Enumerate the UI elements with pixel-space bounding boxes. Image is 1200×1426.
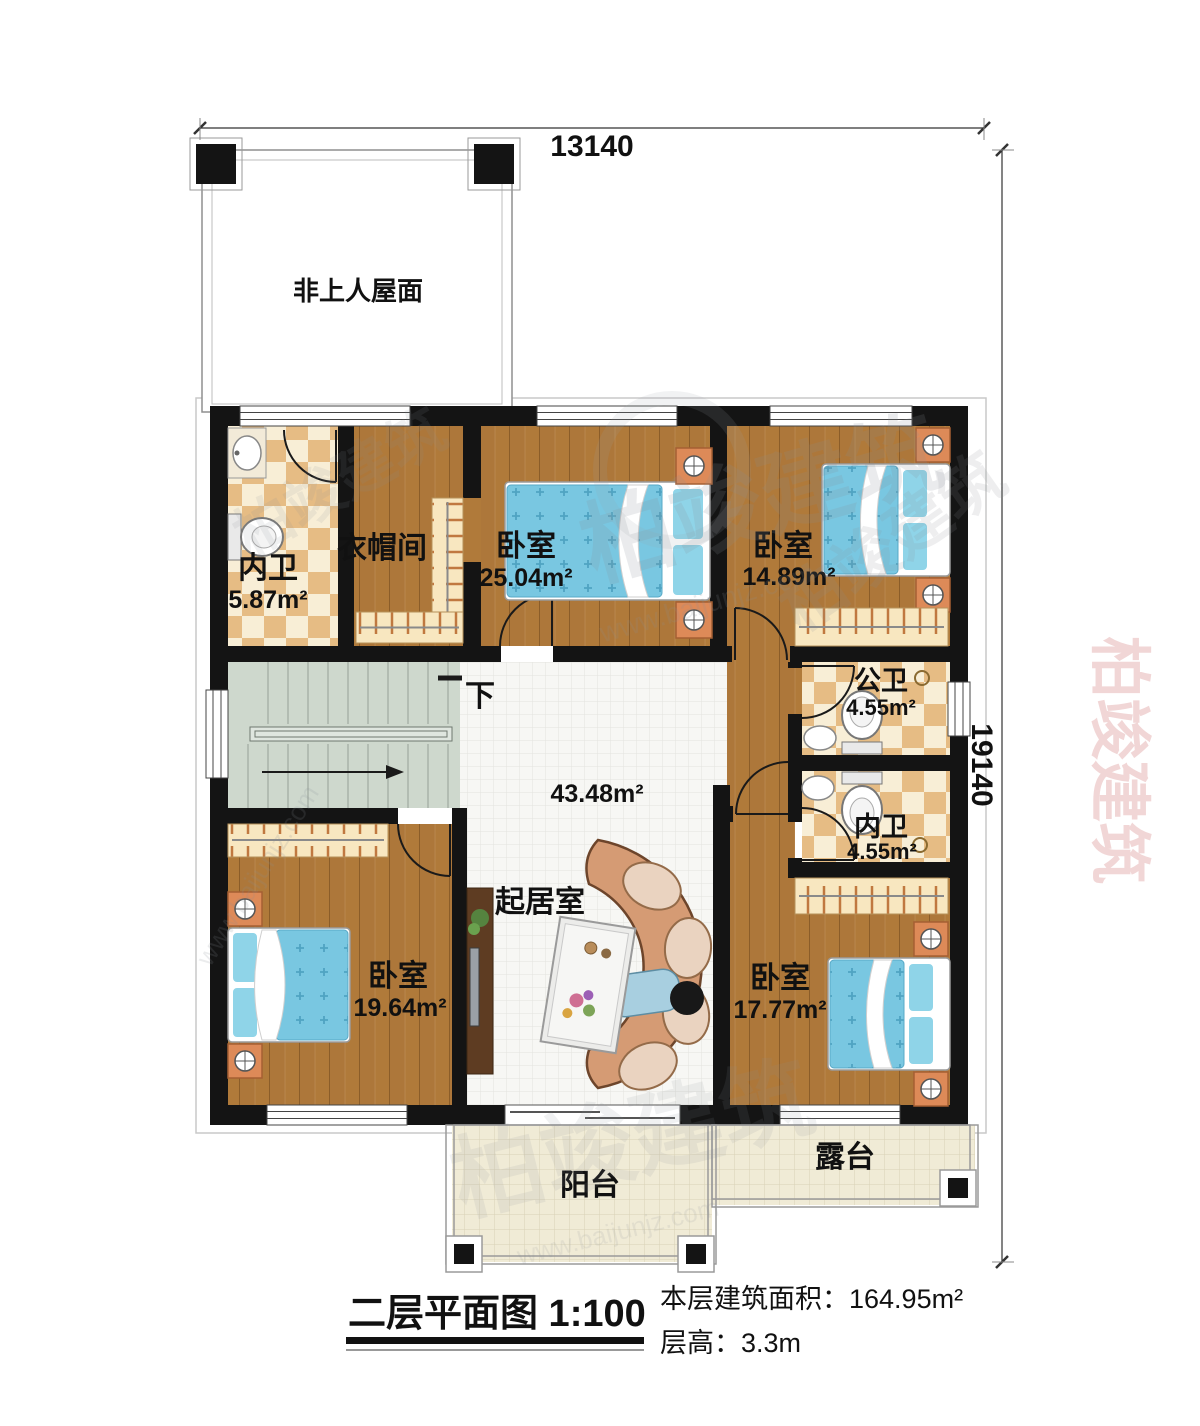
bedroom17-name: 卧室: [750, 961, 810, 995]
bedroom19-area: 19.64m²: [353, 994, 446, 1022]
person-head: [670, 981, 704, 1015]
title-underline-thick: [346, 1337, 644, 1344]
bathroom2-name: 内卫: [854, 812, 908, 842]
bedroom19-wardrobe: [228, 824, 388, 857]
stairs-down-label: 下: [465, 680, 495, 713]
wall-bed17-top-b: [788, 806, 802, 822]
terrace-column: [940, 1170, 976, 1206]
watermark-brand-pink: 柏竣建筑: [1084, 636, 1153, 884]
bedroom25-area: 25.04m²: [479, 564, 572, 592]
tv-cabinet: [467, 888, 493, 1074]
wall-bath-left-stub: [788, 662, 802, 668]
bedroom17-bed: [828, 958, 950, 1070]
wall-bath-divider: [788, 755, 968, 771]
wall-bath-bottom: [788, 862, 968, 878]
wall-h-bed25-b: [553, 646, 732, 662]
wall-h-bath-top: [790, 646, 968, 662]
wall-stairs-bed19-b: [452, 808, 467, 824]
closet-name: 衣帽间: [337, 532, 427, 565]
living-area-value: 43.48m²: [550, 780, 643, 808]
wall-bed19-living: [452, 824, 467, 1105]
bedroom19-name: 卧室: [368, 959, 428, 993]
roof-label: 非上人屋面: [293, 276, 423, 306]
bathroom1-sink: [228, 428, 266, 478]
closet-wardrobe-side: [432, 498, 463, 616]
publicbath-sink: [804, 726, 836, 750]
roof-column-left: [196, 144, 236, 184]
closet-wardrobe-bottom: [356, 612, 463, 643]
bedroom17-wardrobe: [795, 878, 948, 914]
window-bed19-bottom: [267, 1105, 407, 1125]
window-stairs-left: [206, 690, 228, 778]
wall-h-under-bath1: [210, 646, 481, 662]
roof-column-right: [474, 144, 514, 184]
wall-h-bed25-a: [481, 646, 501, 662]
roof-area: 非上人屋面: [190, 138, 520, 412]
title-underline-thin: [346, 1349, 644, 1351]
dim-height-label: 19140: [965, 723, 998, 806]
bedroom25-name: 卧室: [496, 529, 556, 563]
plan-title: 二层平面图 1:100: [348, 1293, 646, 1335]
bathroom2-area: 4.55m²: [847, 839, 917, 864]
bedroom17-nightstand-bottom: [914, 1072, 948, 1106]
dim-width-label: 13140: [550, 130, 633, 163]
balcony-column-right: [678, 1236, 714, 1272]
floor-plan-page: 非上人屋面: [0, 0, 1200, 1426]
bathroom1-area: 5.87m²: [228, 586, 307, 614]
publicbath-area: 4.55m²: [846, 695, 916, 720]
wall-bed17-top-a: [713, 806, 733, 822]
stairs-handrail: [250, 727, 452, 741]
bedroom19-bed: [228, 928, 350, 1042]
wall-living-bed17: [713, 785, 730, 1105]
bedroom19-nightstand-bottom: [228, 1044, 262, 1078]
bedroom14-nightstand-bottom: [916, 578, 950, 612]
title-block: 二层平面图 1:100 本层建筑面积：164.95m² 层高：3.3m: [346, 1284, 963, 1358]
balcony-column-left: [446, 1236, 482, 1272]
bathroom2-sink: [802, 776, 834, 800]
living-name: 起居室: [495, 885, 585, 919]
floor-height-text: 层高：3.3m: [660, 1328, 801, 1358]
floor-plan-drawing: 非上人屋面: [0, 0, 1200, 1426]
terrace-name: 露台: [815, 1140, 875, 1174]
floor-area-text: 本层建筑面积：164.95m²: [660, 1284, 963, 1314]
bedroom17-area: 17.77m²: [733, 996, 826, 1024]
bedroom17-nightstand-top: [914, 922, 948, 956]
closet-door-opening: [463, 498, 481, 562]
publicbath-name: 公卫: [854, 666, 908, 696]
window-top-2: [537, 406, 677, 426]
bedroom14-door-opening: [732, 646, 790, 662]
